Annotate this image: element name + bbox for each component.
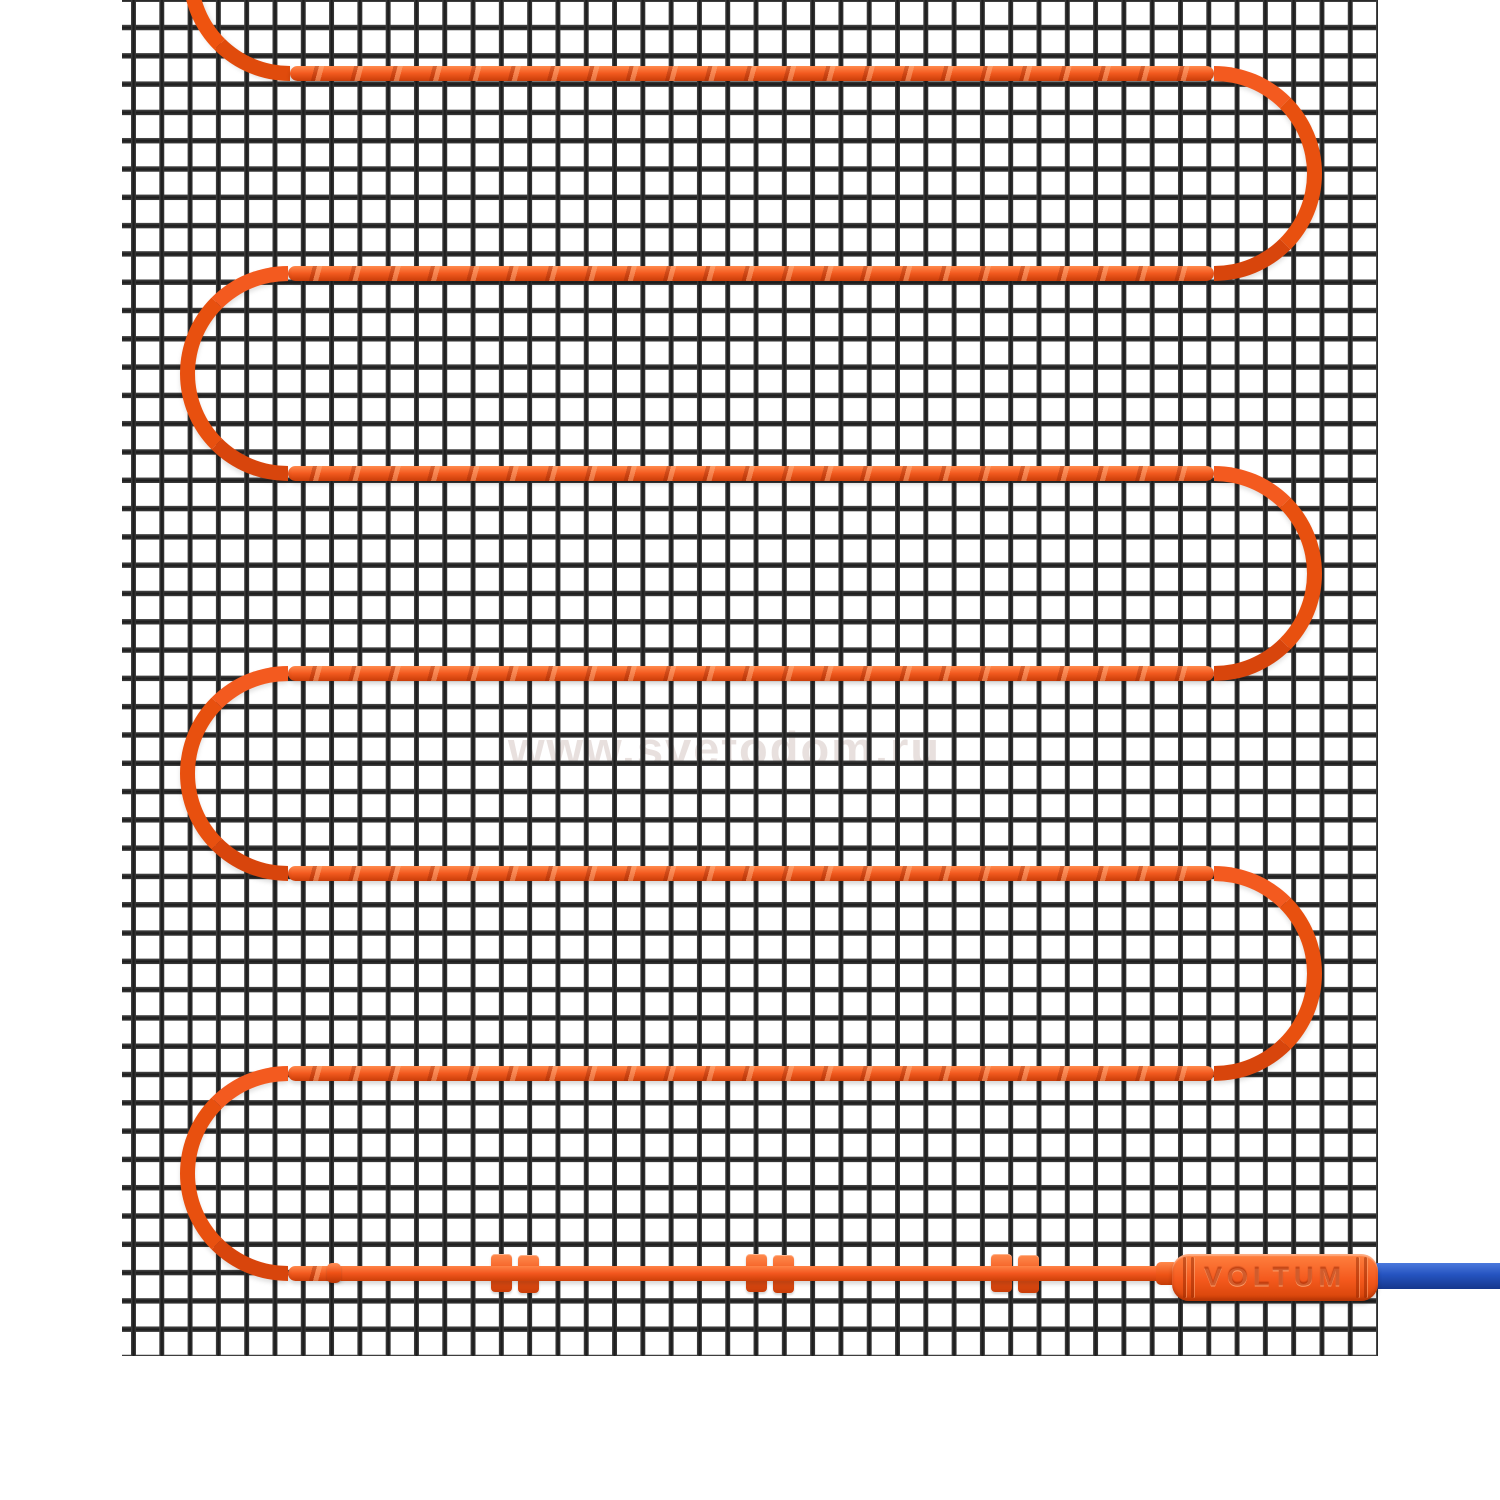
product-image-heating-mat: www.svetodom.ru VOLTUM [0, 0, 1500, 1500]
cold-lead-cable [1374, 1263, 1500, 1289]
connector-ridge [1191, 1257, 1194, 1298]
heating-cable-run [288, 466, 1214, 481]
connector-ridge [1356, 1257, 1359, 1298]
connector-brand-label: VOLTUM [1204, 1263, 1346, 1292]
connector-ridge [1364, 1257, 1367, 1298]
power-connector: VOLTUM [1172, 1254, 1378, 1301]
connector-ridge [1183, 1257, 1186, 1298]
heating-cable-run [288, 866, 1214, 881]
heating-cable-run [290, 66, 1214, 81]
heating-cable-run [288, 266, 1214, 281]
heating-cable-run [288, 1066, 1214, 1081]
cold-lead-run [334, 1266, 1174, 1281]
cable-end-ferrule [327, 1263, 341, 1283]
heating-cable-run [288, 666, 1214, 681]
